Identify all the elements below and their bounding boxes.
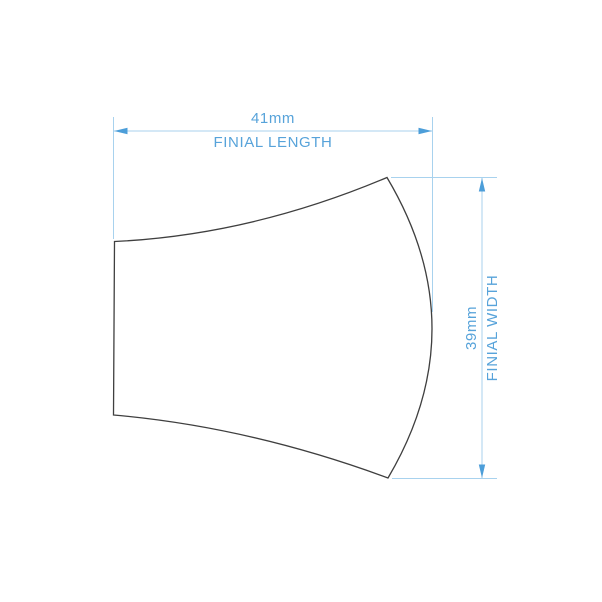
- arrowhead-right-icon: [419, 128, 433, 134]
- dimension-diagram: 41mm FINIAL LENGTH 39mm FINIAL WIDTH: [0, 0, 602, 602]
- arrowhead-up-icon: [479, 178, 485, 192]
- arrowhead-left-icon: [114, 128, 128, 134]
- width-value: 39mm: [464, 306, 480, 350]
- arrowhead-down-icon: [479, 465, 485, 479]
- diagram-drawing: [0, 0, 602, 602]
- length-value: 41mm: [113, 111, 433, 127]
- width-label: FINIAL WIDTH: [485, 275, 501, 382]
- finial-outline-shape: [114, 178, 433, 479]
- length-label: FINIAL LENGTH: [113, 135, 433, 151]
